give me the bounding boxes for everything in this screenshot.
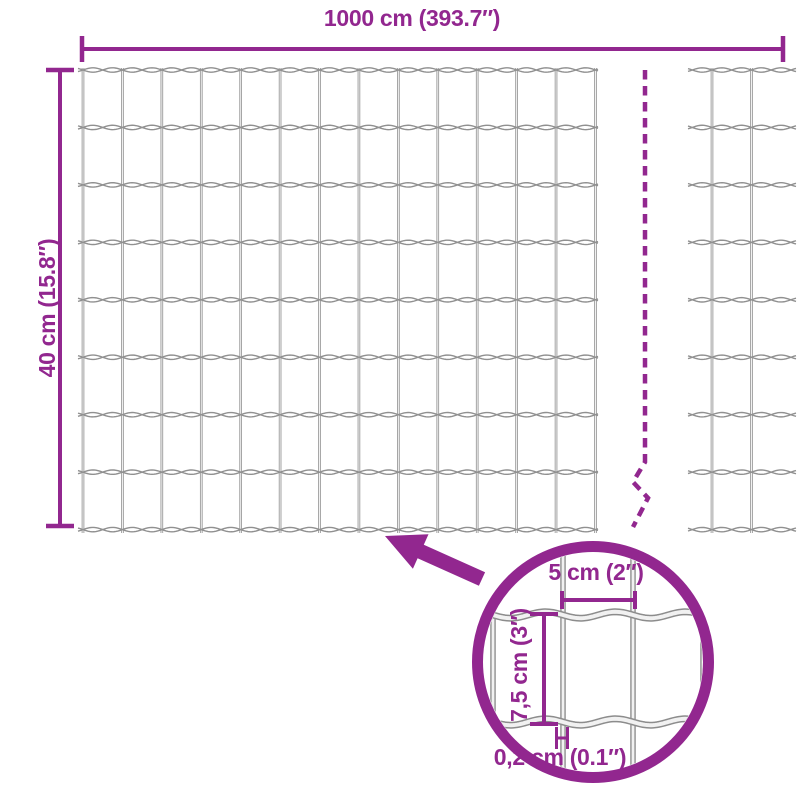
pointer-arrow [385, 534, 485, 586]
detail-width-dimension [562, 591, 635, 609]
height-dimension-label: 40 cm (15.8″) [33, 213, 61, 403]
width-dimension-label: 1000 cm (393.7″) [82, 4, 742, 32]
diagram-artwork [0, 0, 800, 800]
detail-cell-width-label: 5 cm (2″) [496, 558, 696, 586]
break-dashed-line [633, 70, 648, 527]
diagram-canvas: 1000 cm (393.7″) 40 cm (15.8″) 5 cm (2″)… [0, 0, 800, 800]
width-dimension [82, 36, 783, 62]
detail-cell-height-label: 7,5 cm (3″) [505, 600, 533, 730]
detail-height-dimension [530, 614, 558, 724]
wire-thickness-label: 0,2 cm (0.1″) [450, 743, 670, 771]
main-mesh [78, 68, 598, 533]
right-mesh-section [688, 68, 796, 533]
